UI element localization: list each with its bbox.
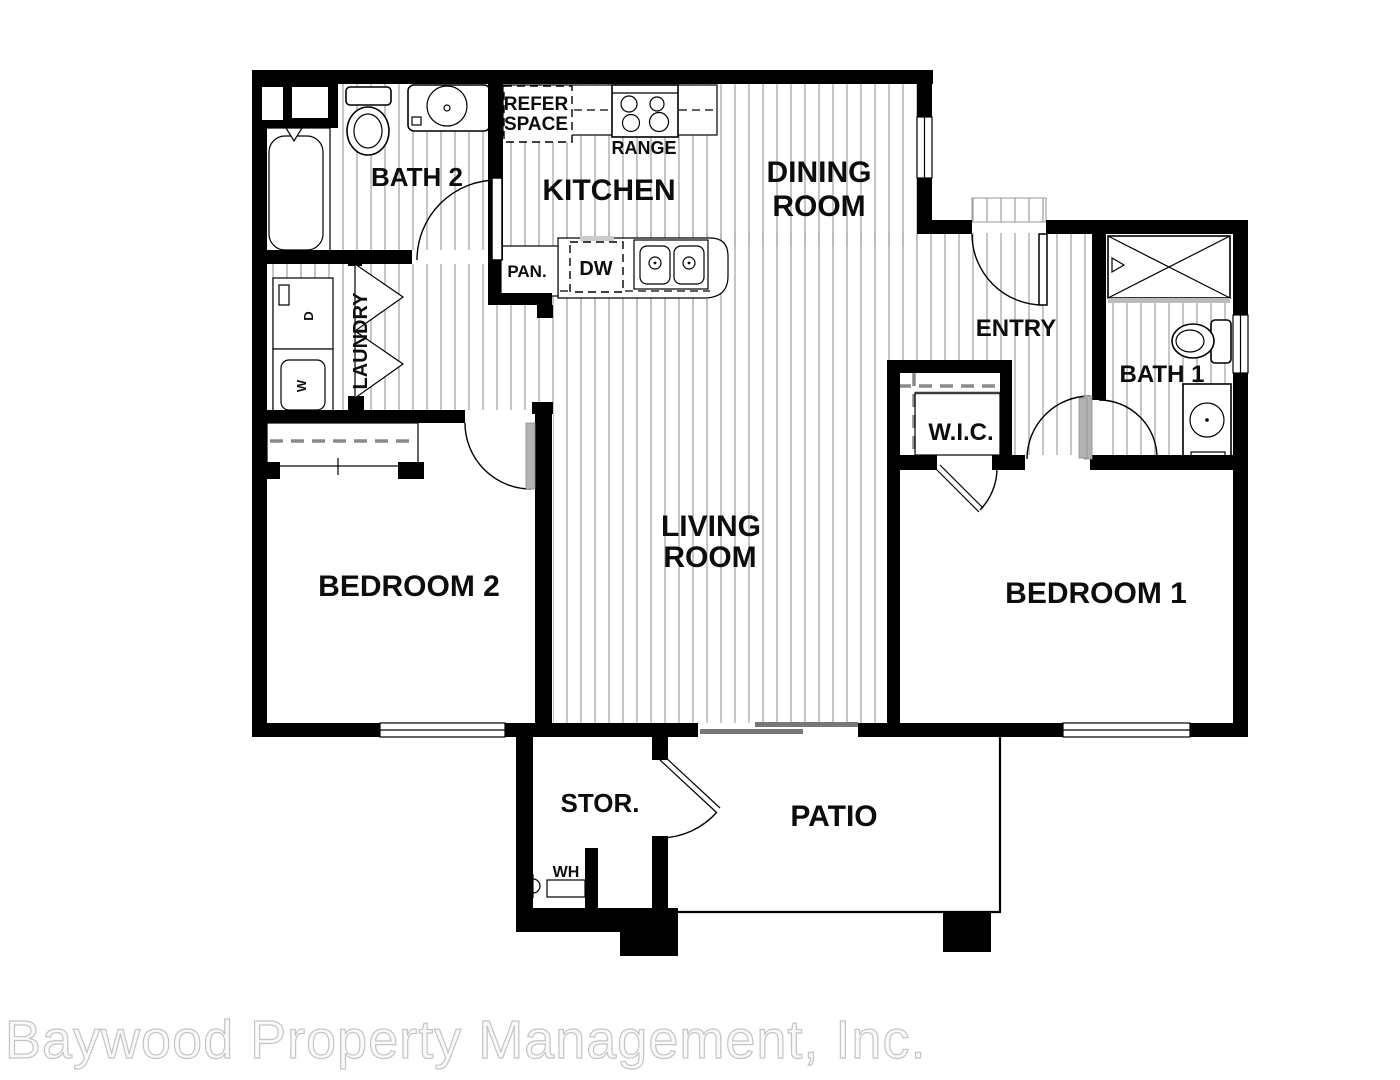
- shower-threshold: [1108, 298, 1230, 303]
- wall-bottom-d: [1190, 723, 1248, 737]
- slider-panel-left: [700, 729, 803, 734]
- label-storage: STOR.: [561, 788, 640, 818]
- label-patio: PATIO: [790, 800, 877, 833]
- wall-storage-left: [516, 737, 533, 932]
- label-pantry: PAN.: [507, 262, 546, 281]
- dw-tab: [580, 236, 614, 241]
- label-water-heater: WH: [553, 864, 580, 881]
- label-range: RANGE: [611, 138, 676, 158]
- wall-right-upper: [1233, 220, 1248, 315]
- living-floor: [553, 233, 887, 723]
- nook-cell-2: [292, 87, 328, 118]
- label-living-2: ROOM: [663, 541, 756, 574]
- label-living-1: LIVING: [661, 510, 761, 543]
- label-laundry: LAUNDRY: [350, 292, 372, 390]
- laundry-fixtures: [273, 278, 333, 419]
- water-heater-box: [547, 880, 585, 897]
- label-washer: W: [294, 379, 309, 392]
- laundry-jamb-bottom: [348, 396, 364, 412]
- label-dining-1: DINING: [767, 156, 872, 189]
- nook-cell-1: [262, 87, 283, 120]
- floor-plan-page: BATH 2 KITCHEN DINING ROOM ENTRY BATH 1 …: [0, 0, 1400, 1080]
- label-dining-2: ROOM: [772, 190, 865, 223]
- floor-plan-svg: BATH 2 KITCHEN DINING ROOM ENTRY BATH 1 …: [0, 0, 1400, 1080]
- label-dishwasher: DW: [579, 258, 612, 280]
- entry-door-leaf: [1039, 234, 1047, 305]
- tub-outer: [262, 128, 330, 258]
- sink-drain-dot-left: [654, 262, 657, 265]
- wall-wic-top: [887, 360, 1012, 373]
- watermark-text: Baywood Property Management, Inc.: [5, 1010, 926, 1070]
- bath1-door-leaf: [1079, 398, 1087, 458]
- wall-bedroom2-living-divider: [535, 402, 552, 732]
- dining-entry-strip: [887, 233, 917, 360]
- label-kitchen: KITCHEN: [542, 174, 675, 207]
- wall-bottom-b: [505, 723, 698, 737]
- label-bath1: BATH 1: [1120, 361, 1205, 388]
- label-bedroom1: BEDROOM 1: [1005, 577, 1187, 610]
- label-bedroom2: BEDROOM 2: [318, 570, 500, 603]
- wall-bath1-left: [1092, 233, 1106, 400]
- closet-jamb-right: [398, 462, 424, 479]
- label-dryer: D: [301, 311, 316, 320]
- patio-pier-left: [620, 908, 678, 956]
- wall-pantry-stub: [537, 305, 553, 318]
- wall-wic-right: [1000, 360, 1012, 458]
- wall-bath1-bottom: [1092, 455, 1248, 470]
- wall-left: [252, 70, 267, 737]
- wall-right-lower: [1233, 373, 1248, 737]
- toilet2-tank: [346, 87, 391, 105]
- label-refer-2: SPACE: [504, 114, 568, 135]
- wall-wic-bottom-left: [887, 455, 937, 470]
- bedroom2-door-leaf: [526, 423, 535, 489]
- wall-bath2-bottom: [252, 250, 412, 264]
- wall-dining-right-upper: [917, 84, 932, 117]
- wall-bottom-a: [252, 723, 380, 737]
- label-wic: W.I.C.: [928, 419, 993, 446]
- toilet1-bowl: [1172, 324, 1214, 358]
- wall-entry-north-left: [917, 220, 972, 234]
- wall-top: [252, 70, 933, 84]
- wall-bedroom2-top: [252, 410, 465, 423]
- closet-jamb-left: [258, 462, 280, 479]
- wall-storage-right-upper: [652, 737, 668, 760]
- wall-wic-bottom-right: [992, 455, 1025, 470]
- patio-pier-right: [943, 912, 991, 952]
- wall-entry-north-right: [1046, 220, 1248, 234]
- sink-drain-dot-right: [688, 262, 691, 265]
- label-bath2: BATH 2: [371, 162, 463, 192]
- wall-bedroom1-left: [887, 360, 900, 737]
- slider-panel-right: [755, 722, 858, 727]
- wall-wh-stub: [585, 848, 598, 910]
- bath2-vanity: [408, 85, 490, 131]
- label-entry: ENTRY: [976, 315, 1056, 342]
- bath1-sink-drain: [1205, 418, 1209, 422]
- kitchen-sink: [634, 240, 708, 289]
- label-refer-1: REFER: [504, 94, 569, 115]
- entry-landing: [972, 198, 1046, 222]
- wall-pantry-bottom: [488, 293, 552, 305]
- bath2-door-leaf: [492, 178, 502, 260]
